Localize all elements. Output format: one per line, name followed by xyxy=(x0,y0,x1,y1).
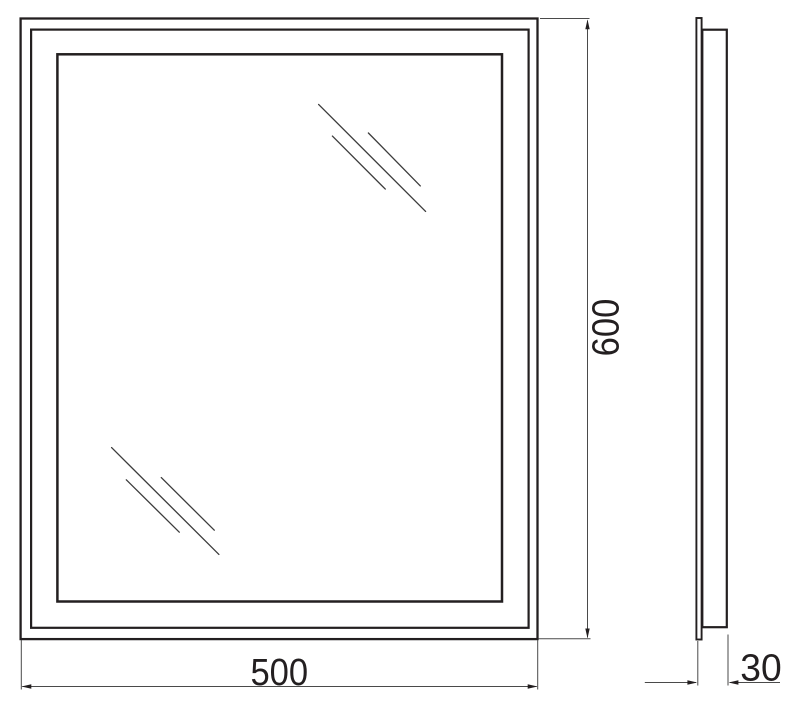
svg-text:600: 600 xyxy=(584,299,627,357)
svg-text:500: 500 xyxy=(250,651,308,694)
svg-text:30: 30 xyxy=(740,646,781,688)
